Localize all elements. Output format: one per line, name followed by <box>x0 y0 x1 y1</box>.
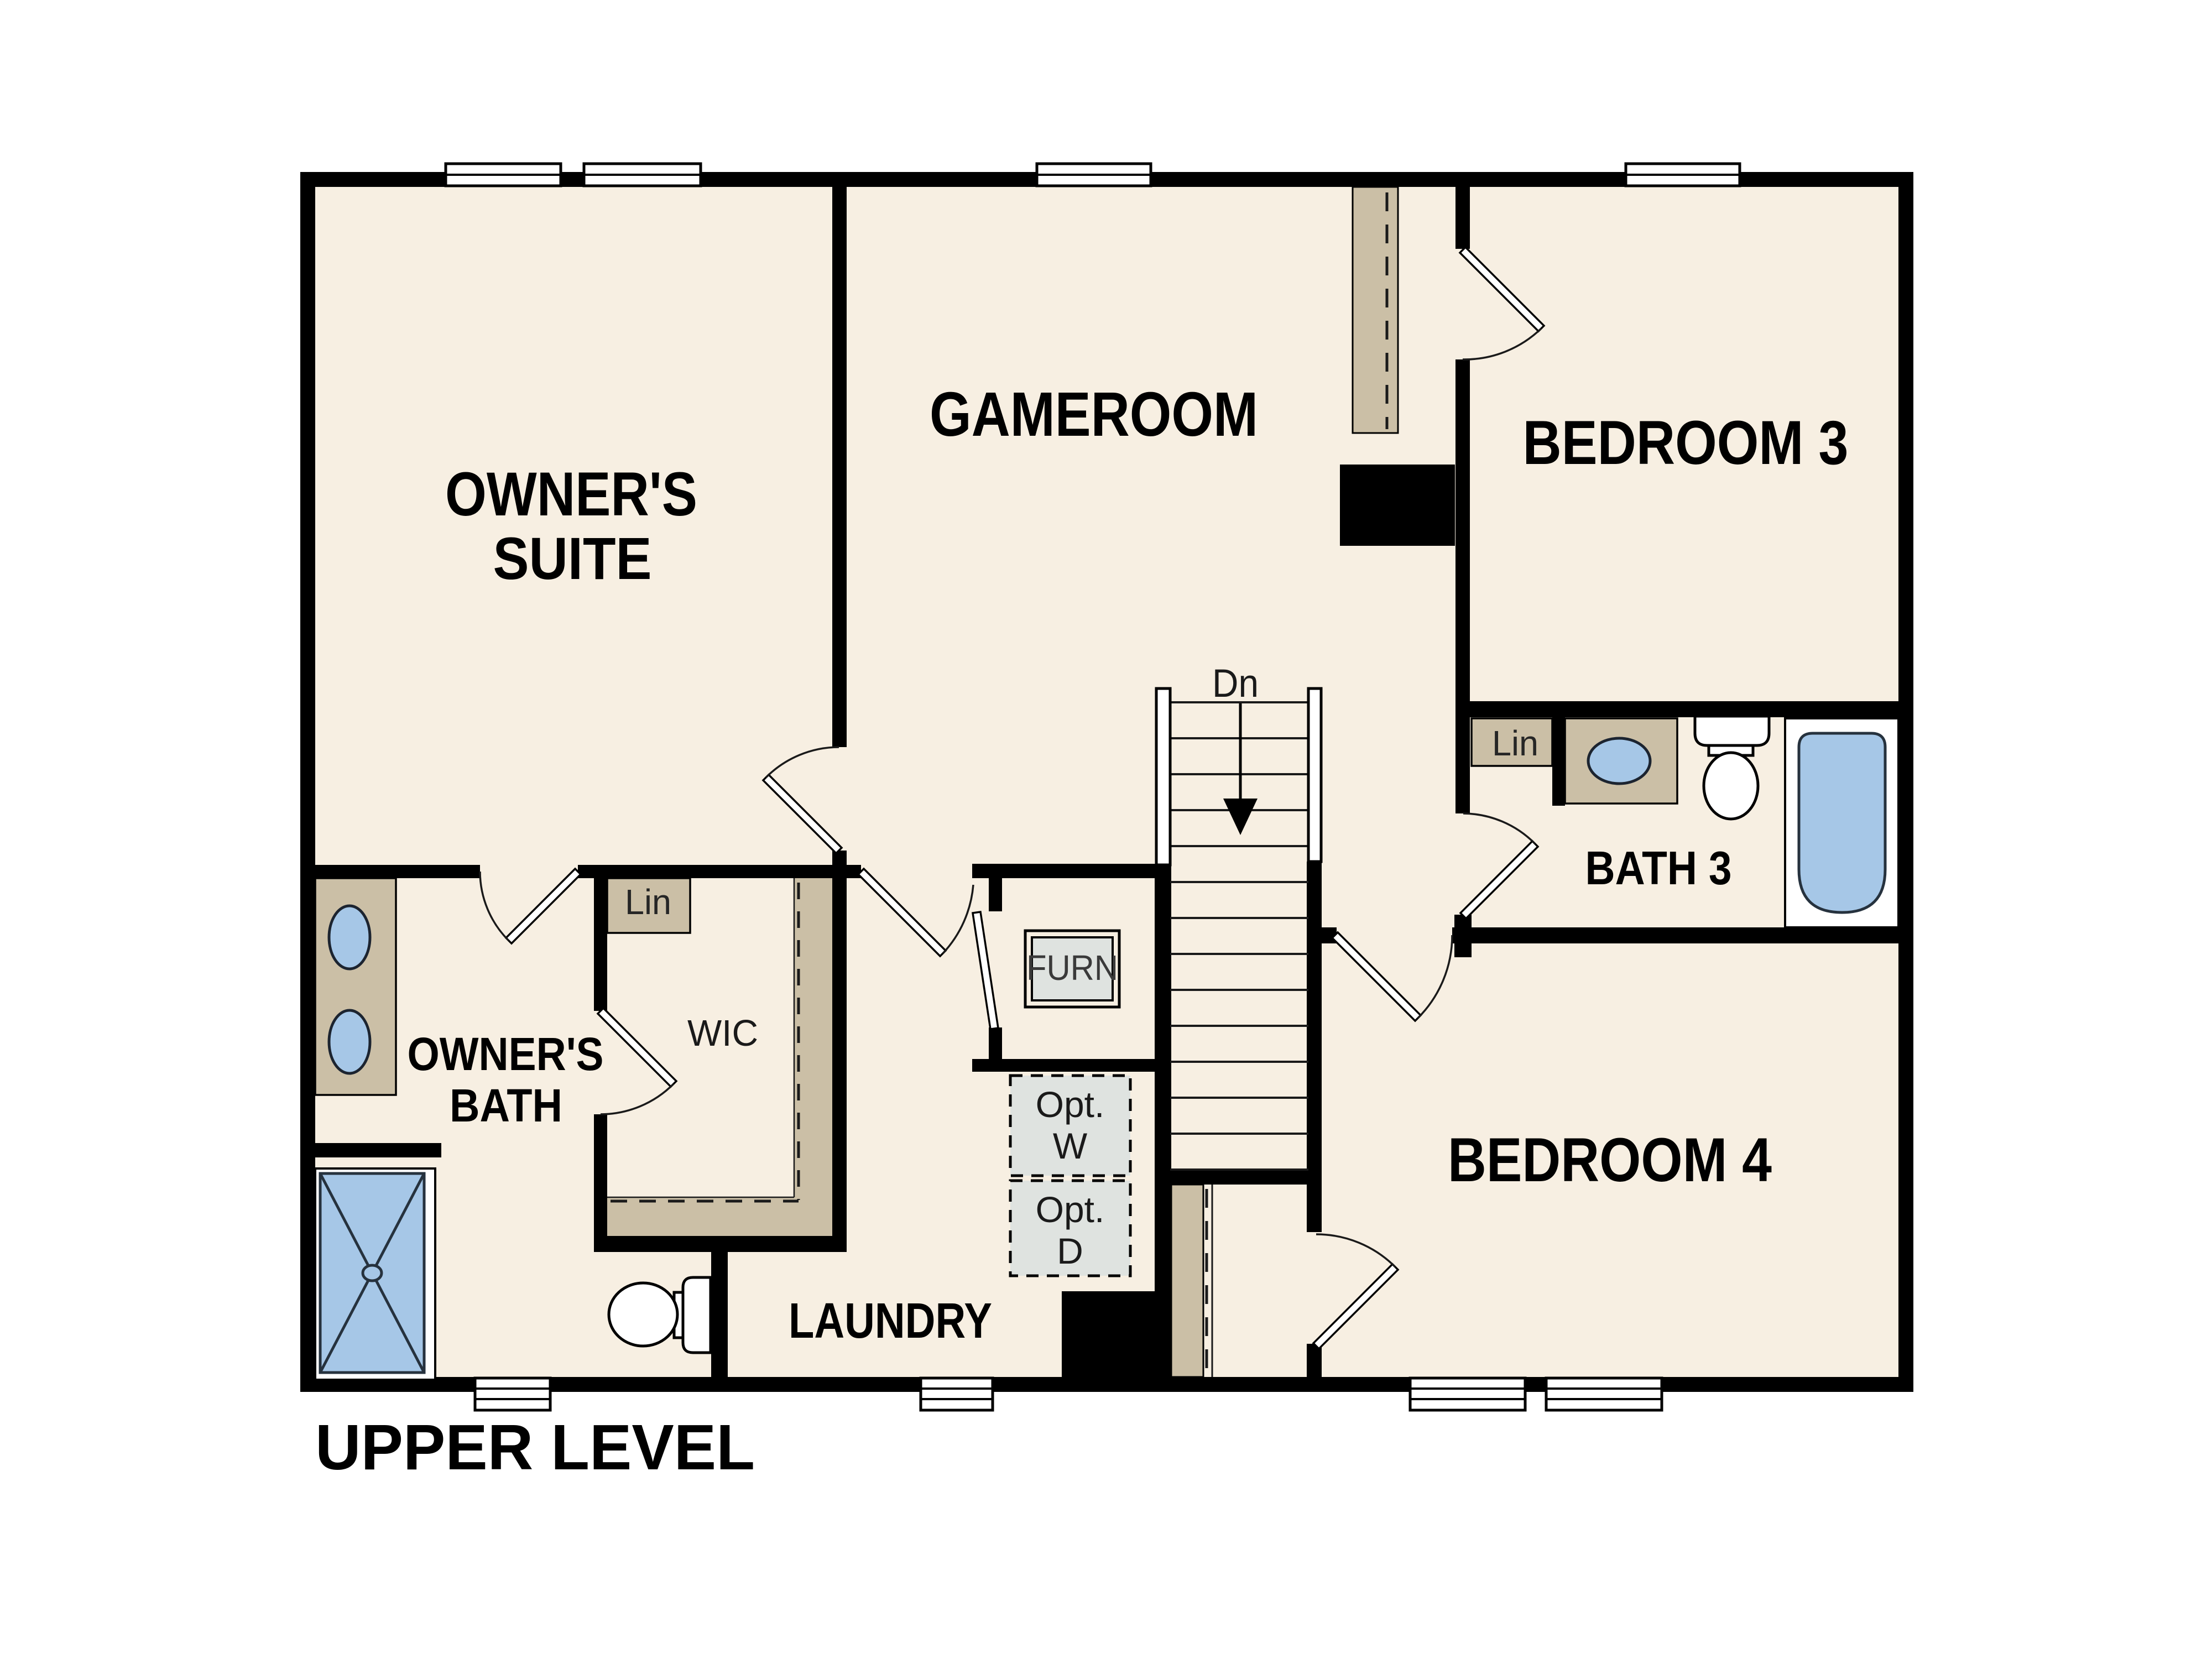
svg-text:Opt.: Opt. <box>1036 1189 1105 1230</box>
svg-text:Lin: Lin <box>1492 723 1538 763</box>
svg-text:W: W <box>1053 1125 1088 1166</box>
svg-text:LAUNDRY: LAUNDRY <box>789 1293 992 1349</box>
svg-text:WIC: WIC <box>687 1013 758 1054</box>
svg-text:Lin: Lin <box>625 882 671 922</box>
svg-text:BATH 3: BATH 3 <box>1585 842 1732 895</box>
svg-text:UPPER LEVEL: UPPER LEVEL <box>315 1411 755 1483</box>
svg-text:FURN: FURN <box>1026 948 1118 988</box>
svg-text:BEDROOM 4: BEDROOM 4 <box>1448 1125 1772 1194</box>
svg-text:D: D <box>1057 1230 1083 1271</box>
svg-text:BEDROOM 3: BEDROOM 3 <box>1523 408 1849 477</box>
svg-text:SUITE: SUITE <box>493 525 652 592</box>
svg-text:Dn: Dn <box>1212 662 1259 706</box>
svg-text:GAMEROOM: GAMEROOM <box>930 379 1258 449</box>
svg-text:OWNER'S: OWNER'S <box>445 460 697 529</box>
svg-text:Opt.: Opt. <box>1036 1084 1105 1125</box>
svg-text:OWNER'S: OWNER'S <box>408 1028 604 1080</box>
svg-text:BATH: BATH <box>450 1079 562 1131</box>
